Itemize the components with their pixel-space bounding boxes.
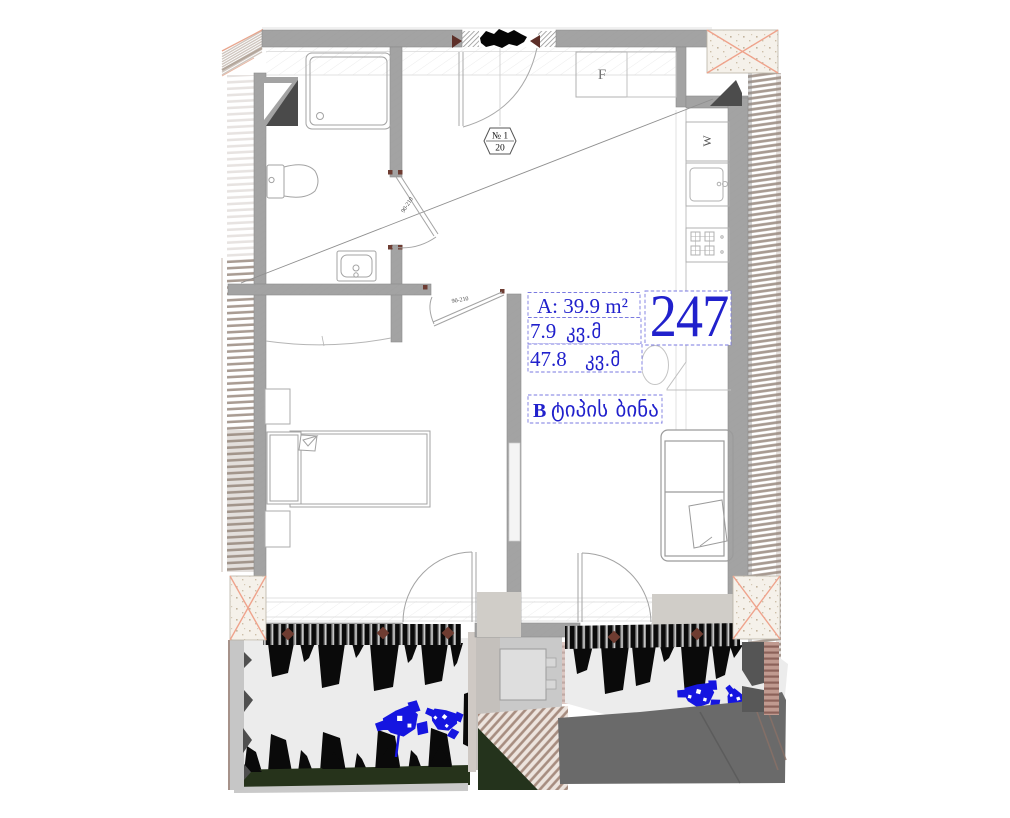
svg-text:W: W <box>700 135 714 147</box>
svg-text:47.8: 47.8 <box>530 347 567 371</box>
svg-text:B: B <box>533 400 546 422</box>
svg-text:7.9: 7.9 <box>530 319 556 343</box>
svg-text:20: 20 <box>495 144 505 154</box>
svg-text:A: 39.9 m²: A: 39.9 m² <box>537 294 628 318</box>
svg-text:№ 1: № 1 <box>492 132 508 142</box>
svg-text:F: F <box>598 67 606 83</box>
svg-text:247: 247 <box>650 284 729 350</box>
